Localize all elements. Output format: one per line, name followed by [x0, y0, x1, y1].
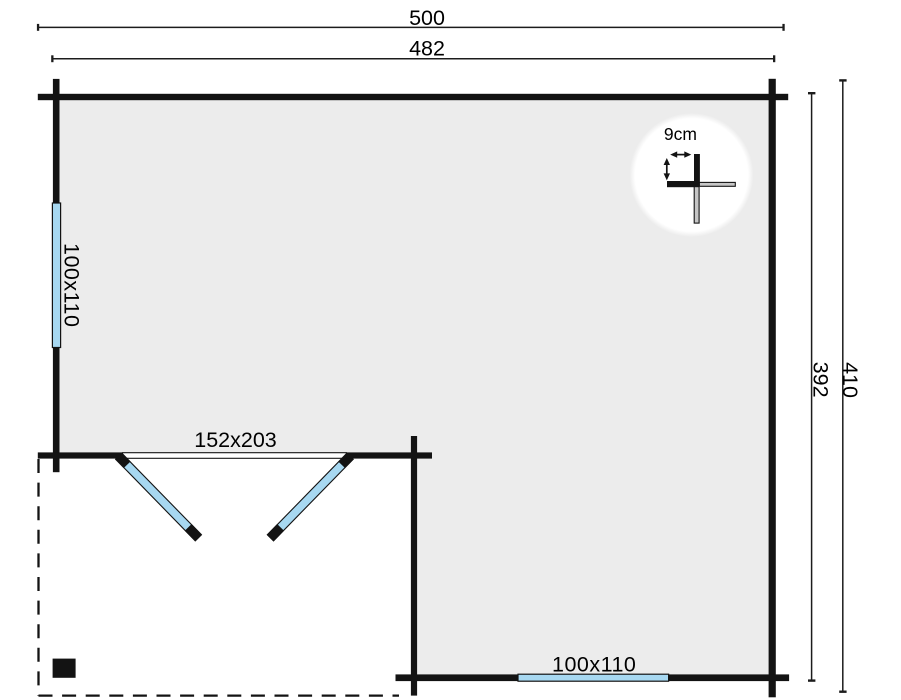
svg-text:9cm: 9cm	[664, 124, 697, 144]
svg-text:100x110: 100x110	[552, 652, 636, 676]
svg-text:100x110: 100x110	[59, 243, 83, 327]
svg-text:152x203: 152x203	[194, 428, 277, 452]
svg-text:500: 500	[409, 6, 445, 30]
svg-text:392: 392	[808, 362, 832, 398]
svg-text:482: 482	[409, 36, 445, 60]
svg-text:410: 410	[838, 362, 862, 398]
